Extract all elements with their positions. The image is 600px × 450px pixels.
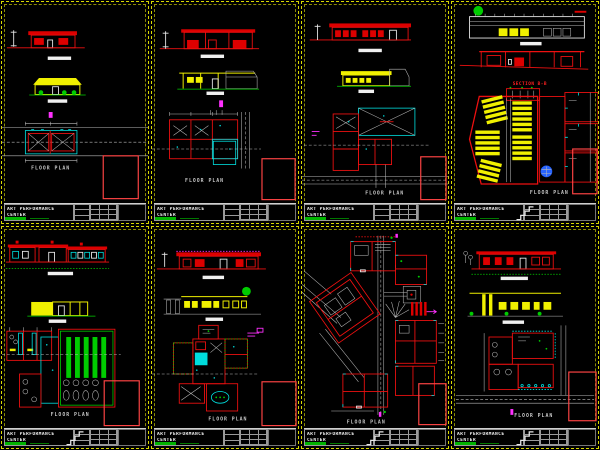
cad-sheet-montage: FLOOR PLAN ART PERFORMANCE CENTER <box>0 0 600 450</box>
seating-bank <box>512 101 531 131</box>
green-stamp <box>455 442 476 445</box>
green-stamp <box>155 217 176 220</box>
sheet-3-canvas: FLOOR PLAN <box>302 2 448 223</box>
yellow-elevation <box>15 63 86 102</box>
key-plan <box>104 381 139 426</box>
key-plan <box>262 159 295 200</box>
floor-plan-caption: FLOOR PLAN <box>31 165 70 171</box>
drawing-sheet-7[interactable]: FLOOR PLAN ART PERFORMANCE CENTER <box>301 226 449 449</box>
red-elevation <box>310 18 431 52</box>
seating-bank <box>512 135 531 160</box>
sheet-6-canvas: FLOOR PLAN <box>152 227 298 448</box>
green-stamp <box>5 217 26 220</box>
sheet-2-canvas: FLOOR PLAN <box>152 2 298 223</box>
sheet-5-canvas: FLOOR PLAN <box>2 227 148 448</box>
drawing-sheet-4[interactable]: SECTION B-B <box>451 1 599 224</box>
drawing-sheet-5[interactable]: FLOOR PLAN ART PERFORMANCE CENTER <box>1 226 149 449</box>
floor-plan-drawing <box>302 108 448 188</box>
green-stamp <box>305 442 326 445</box>
rotated-building <box>310 273 380 343</box>
key-plan <box>569 372 596 421</box>
floor-plan-caption: FLOOR PLAN <box>365 191 404 197</box>
key-plan <box>262 382 296 426</box>
drawing-sheet-2[interactable]: FLOOR PLAN ART PERFORMANCE CENTER <box>151 1 299 224</box>
green-stamp <box>455 217 476 220</box>
white-elevation <box>452 6 598 45</box>
floor-plan-drawing <box>2 112 148 163</box>
floor-plan-caption: FLOOR PLAN <box>514 413 553 419</box>
section-label: SECTION B-B <box>513 81 547 87</box>
floor-plan-caption: FLOOR PLAN <box>347 420 386 426</box>
floor-plan-caption: FLOOR PLAN <box>530 190 569 196</box>
key-plan <box>103 156 138 199</box>
floor-plan-caption: FLOOR PLAN <box>185 178 224 184</box>
yellow-elevation <box>467 289 562 324</box>
sheet-8-canvas: FLOOR PLAN <box>452 227 598 448</box>
sheet-7-canvas: FLOOR PLAN <box>302 227 448 448</box>
red-elevation <box>7 22 94 60</box>
red-section-elevation <box>160 17 275 58</box>
sheet-1-canvas: FLOOR PLAN <box>2 2 148 223</box>
floor-plan-caption: FLOOR PLAN <box>208 417 247 423</box>
drawing-sheet-6[interactable]: FLOOR PLAN ART PERFORMANCE CENTER <box>151 226 299 449</box>
red-section <box>460 52 588 79</box>
site-plan-drawing <box>302 234 444 417</box>
title-block-stamps <box>74 204 90 221</box>
red-elevation <box>157 239 283 280</box>
drawing-sheet-1[interactable]: FLOOR PLAN ART PERFORMANCE CENTER <box>1 1 149 224</box>
yellow-elevation <box>337 57 411 93</box>
seating-bank <box>481 95 508 124</box>
green-stamp <box>5 442 26 445</box>
red-elevation <box>464 243 578 280</box>
green-stamp <box>305 217 326 220</box>
red-elevation <box>6 241 123 276</box>
key-plan <box>573 149 597 194</box>
title-block-blank-cell <box>118 204 146 221</box>
seating-bank <box>475 131 499 156</box>
yellow-elevation <box>164 287 264 321</box>
auditorium-floor-plan <box>470 87 598 184</box>
yellow-elevation <box>16 288 98 323</box>
key-plan <box>419 384 446 425</box>
floor-plan-drawing <box>152 100 261 168</box>
drawing-sheet-8[interactable]: FLOOR PLAN ART PERFORMANCE CENTER <box>451 226 599 449</box>
floor-plan-drawing <box>456 325 594 415</box>
floor-plan-caption: FLOOR PLAN <box>51 412 90 418</box>
green-stamp <box>155 442 176 445</box>
floor-plan-drawing <box>152 325 263 411</box>
drawing-sheet-3[interactable]: FLOOR PLAN ART PERFORMANCE CENTER <box>301 1 449 224</box>
key-plan <box>421 157 446 200</box>
title-block-revision-grid <box>90 204 118 221</box>
sheet-4-canvas: SECTION B-B <box>452 2 598 223</box>
yellow-elevation <box>163 65 260 95</box>
